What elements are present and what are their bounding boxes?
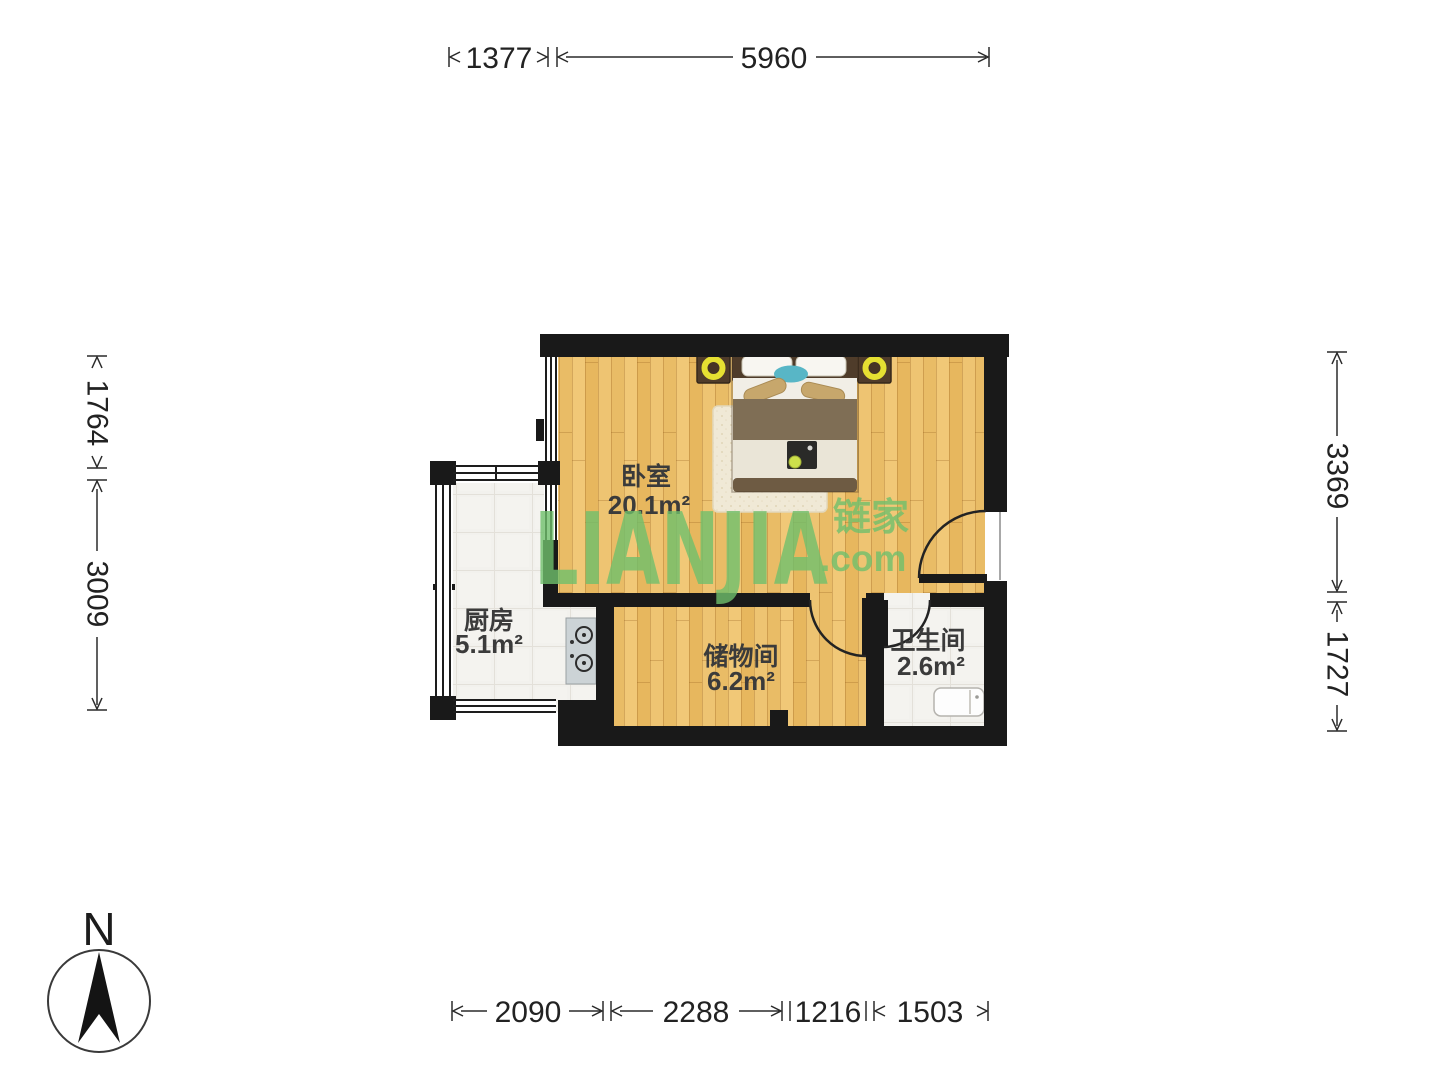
kitchen-area: 5.1m² — [455, 629, 523, 659]
bedroom-label: 卧室 — [621, 462, 671, 491]
dim-top-1: 1377 — [466, 42, 533, 75]
storage-door-gap-floor — [810, 593, 866, 607]
floorplan-page: 卧室 20.1m² 厨房 5.1m² 储物间 6.2m² 卫生间 2.6m² — [0, 0, 1440, 1080]
kitchen-top-window — [453, 464, 540, 481]
wall-bedroom-left — [543, 540, 558, 593]
storage-door-leaf — [862, 598, 870, 656]
lamp-icon — [705, 359, 723, 377]
wall-kitchen-corner — [558, 700, 614, 746]
dim-bottom-1: 2090 — [495, 996, 562, 1029]
kitchen-bottom-window — [453, 699, 556, 713]
dim-bottom-2: 2288 — [663, 996, 730, 1029]
dim-right-2: 1727 — [1321, 631, 1354, 698]
kitchen-floor — [453, 483, 545, 712]
wall-junction-post — [538, 461, 560, 485]
wall-right-upper — [984, 357, 1007, 512]
wall-bathroom-top — [930, 593, 984, 607]
compass-label: N — [82, 903, 115, 955]
dim-top-2: 5960 — [741, 42, 808, 75]
compass: N — [48, 903, 150, 1052]
dim-right-1: 3369 — [1321, 443, 1354, 510]
wall-top — [540, 334, 1009, 357]
wall-divider — [543, 593, 810, 607]
bed-footboard — [733, 478, 857, 492]
dim-left-2: 3009 — [81, 561, 114, 628]
bedroom-area: 20.1m² — [608, 490, 691, 520]
dim-bottom-3: 1216 — [795, 996, 862, 1029]
north-arrow-icon — [78, 952, 120, 1043]
bathroom-area: 2.6m² — [897, 651, 965, 681]
wall-notch — [770, 710, 788, 726]
floorplan-drawing: 卧室 20.1m² 厨房 5.1m² 储物间 6.2m² 卫生间 2.6m² — [0, 0, 1440, 1080]
bathroom-door-leaf — [881, 600, 888, 647]
wall-right-lower — [984, 581, 1007, 746]
wall-bottom — [592, 726, 1007, 746]
toilet — [934, 688, 984, 716]
stove — [566, 618, 596, 684]
lamp-icon — [866, 359, 884, 377]
double-bed — [732, 352, 858, 492]
dim-left-1: 1764 — [81, 380, 114, 447]
bedroom-left-window-upper — [544, 357, 557, 461]
kitchen-left-window — [435, 485, 452, 696]
tray-dot — [808, 446, 813, 451]
bedroom-left-window-lower — [544, 485, 557, 540]
nightstand-left — [697, 354, 730, 383]
bed-blanket — [733, 399, 857, 440]
tray-bowl — [789, 456, 801, 468]
wall-kitchen-post-bottom — [430, 696, 456, 720]
storage-area: 6.2m² — [707, 666, 775, 696]
dim-bottom-4: 1503 — [897, 996, 964, 1029]
entry-door-leaf — [919, 574, 987, 583]
nightstand-right — [858, 354, 891, 383]
wall-kitchen-post-top — [430, 461, 456, 485]
